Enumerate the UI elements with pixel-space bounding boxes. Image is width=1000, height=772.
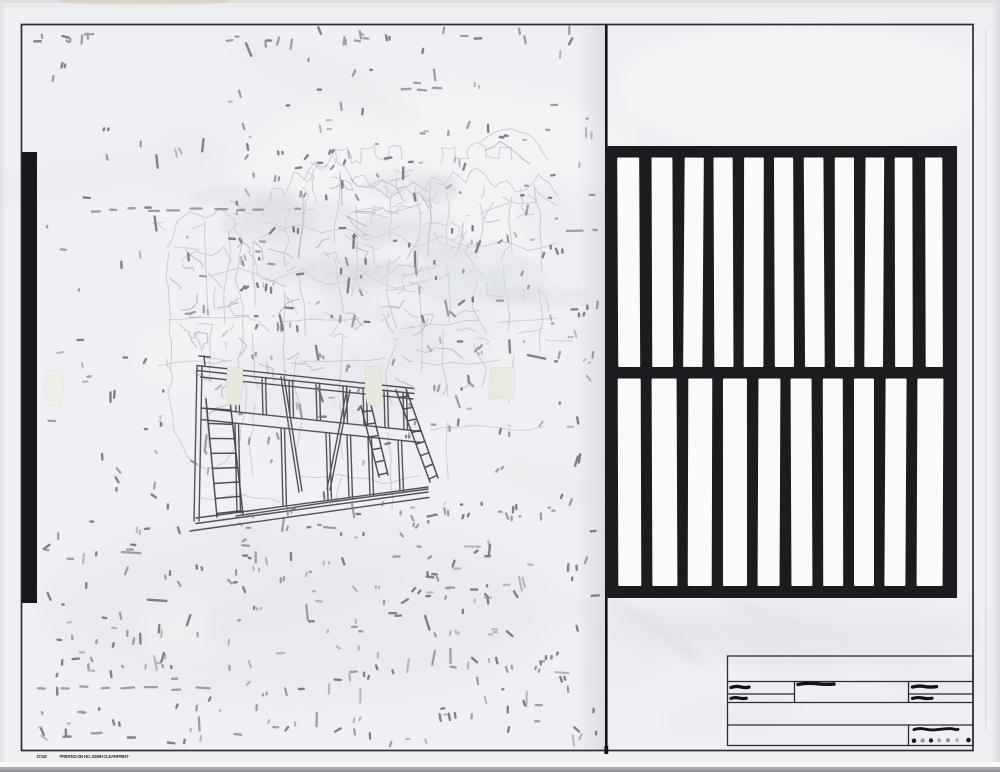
svg-text:17 X 22: 17 X 22: [37, 754, 48, 759]
svg-text:PRINTED ON NO. 1000H CLEARPRIN: PRINTED ON NO. 1000H CLEARPRINT ·: [60, 754, 131, 759]
